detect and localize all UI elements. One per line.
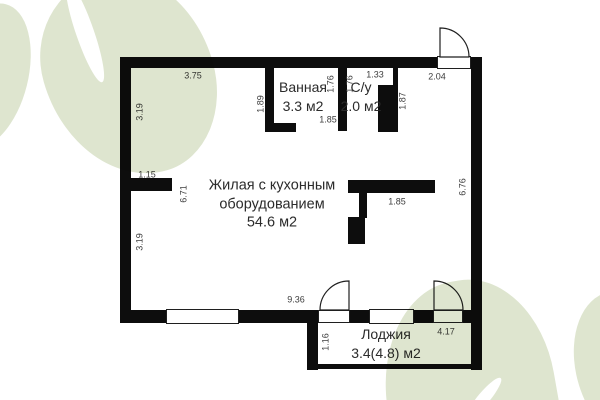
wall-bathroom-left [265,68,274,131]
balcony-door-opening-1 [318,310,350,323]
dimension-label: 2.04 [428,73,446,82]
dimension-label: 1.87 [399,92,408,110]
room-name: Ванная [279,78,327,97]
balcony-door-arc-1 [320,281,349,310]
wall-kitchen-top [348,180,435,193]
dimension-label: 6.76 [459,178,468,196]
leaf-decoration [368,267,574,400]
wall-kitchen-side [359,193,367,218]
leaf-decoration [561,283,600,400]
room-name: оборудованием [209,195,336,214]
room-label-bathroom: Ванная 3.3 м2 [279,78,327,116]
dimension-label: 1.16 [322,333,331,351]
dimension-label: 1.76 [327,75,336,93]
dimension-label: 6.71 [180,185,189,203]
dimension-label: 1.89 [257,95,266,113]
window-living-left [166,309,239,324]
dimension-label: 3.19 [136,233,145,251]
wall-kitchen-block [348,217,365,244]
leaf-decoration [20,0,238,196]
room-name: Жилая с кухонным [209,176,336,195]
room-area: 54.6 м2 [209,213,336,232]
entry-door-opening [437,56,471,69]
dimension-label: 1.33 [366,71,384,80]
dimension-label: 1.76 [346,75,355,93]
floorplan: Ванная 3.3 м2 С/у 2.0 м2 Жилая с кухонны… [0,0,600,400]
wall-loggia-left [307,322,318,370]
dimension-label: 1.85 [388,198,406,207]
dimension-label: 9.36 [287,296,305,305]
entry-door-arc [440,28,469,57]
leaf-decoration [0,0,45,157]
room-area: 2.0 м2 [341,97,382,116]
dimension-label: 1.85 [319,116,337,125]
wall-bathroom-bottom [265,123,296,132]
room-area: 3.3 м2 [279,97,327,116]
wall-entry-stub [131,178,172,191]
room-label-living: Жилая с кухонным оборудованием 54.6 м2 [209,176,336,232]
